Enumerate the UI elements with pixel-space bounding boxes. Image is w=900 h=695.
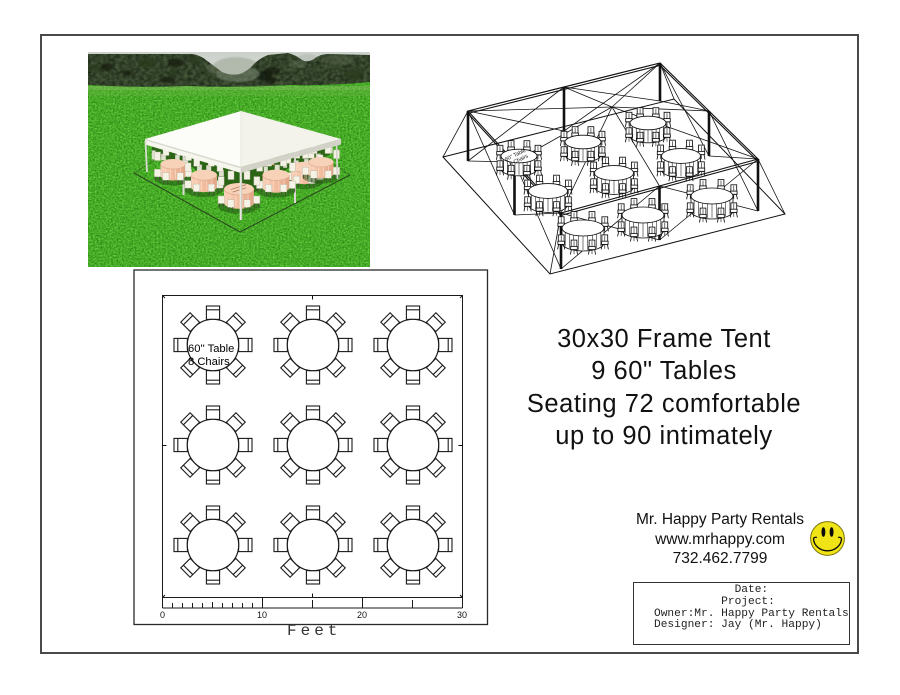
svg-text:Feet: Feet — [287, 622, 341, 640]
svg-text:0: 0 — [160, 610, 165, 620]
svg-text:20: 20 — [357, 610, 367, 620]
svg-text:10: 10 — [257, 610, 267, 620]
svg-text:60'' Table: 60'' Table — [188, 343, 234, 355]
svg-text:8 Chairs: 8 Chairs — [188, 356, 230, 368]
svg-text:30: 30 — [457, 610, 467, 620]
